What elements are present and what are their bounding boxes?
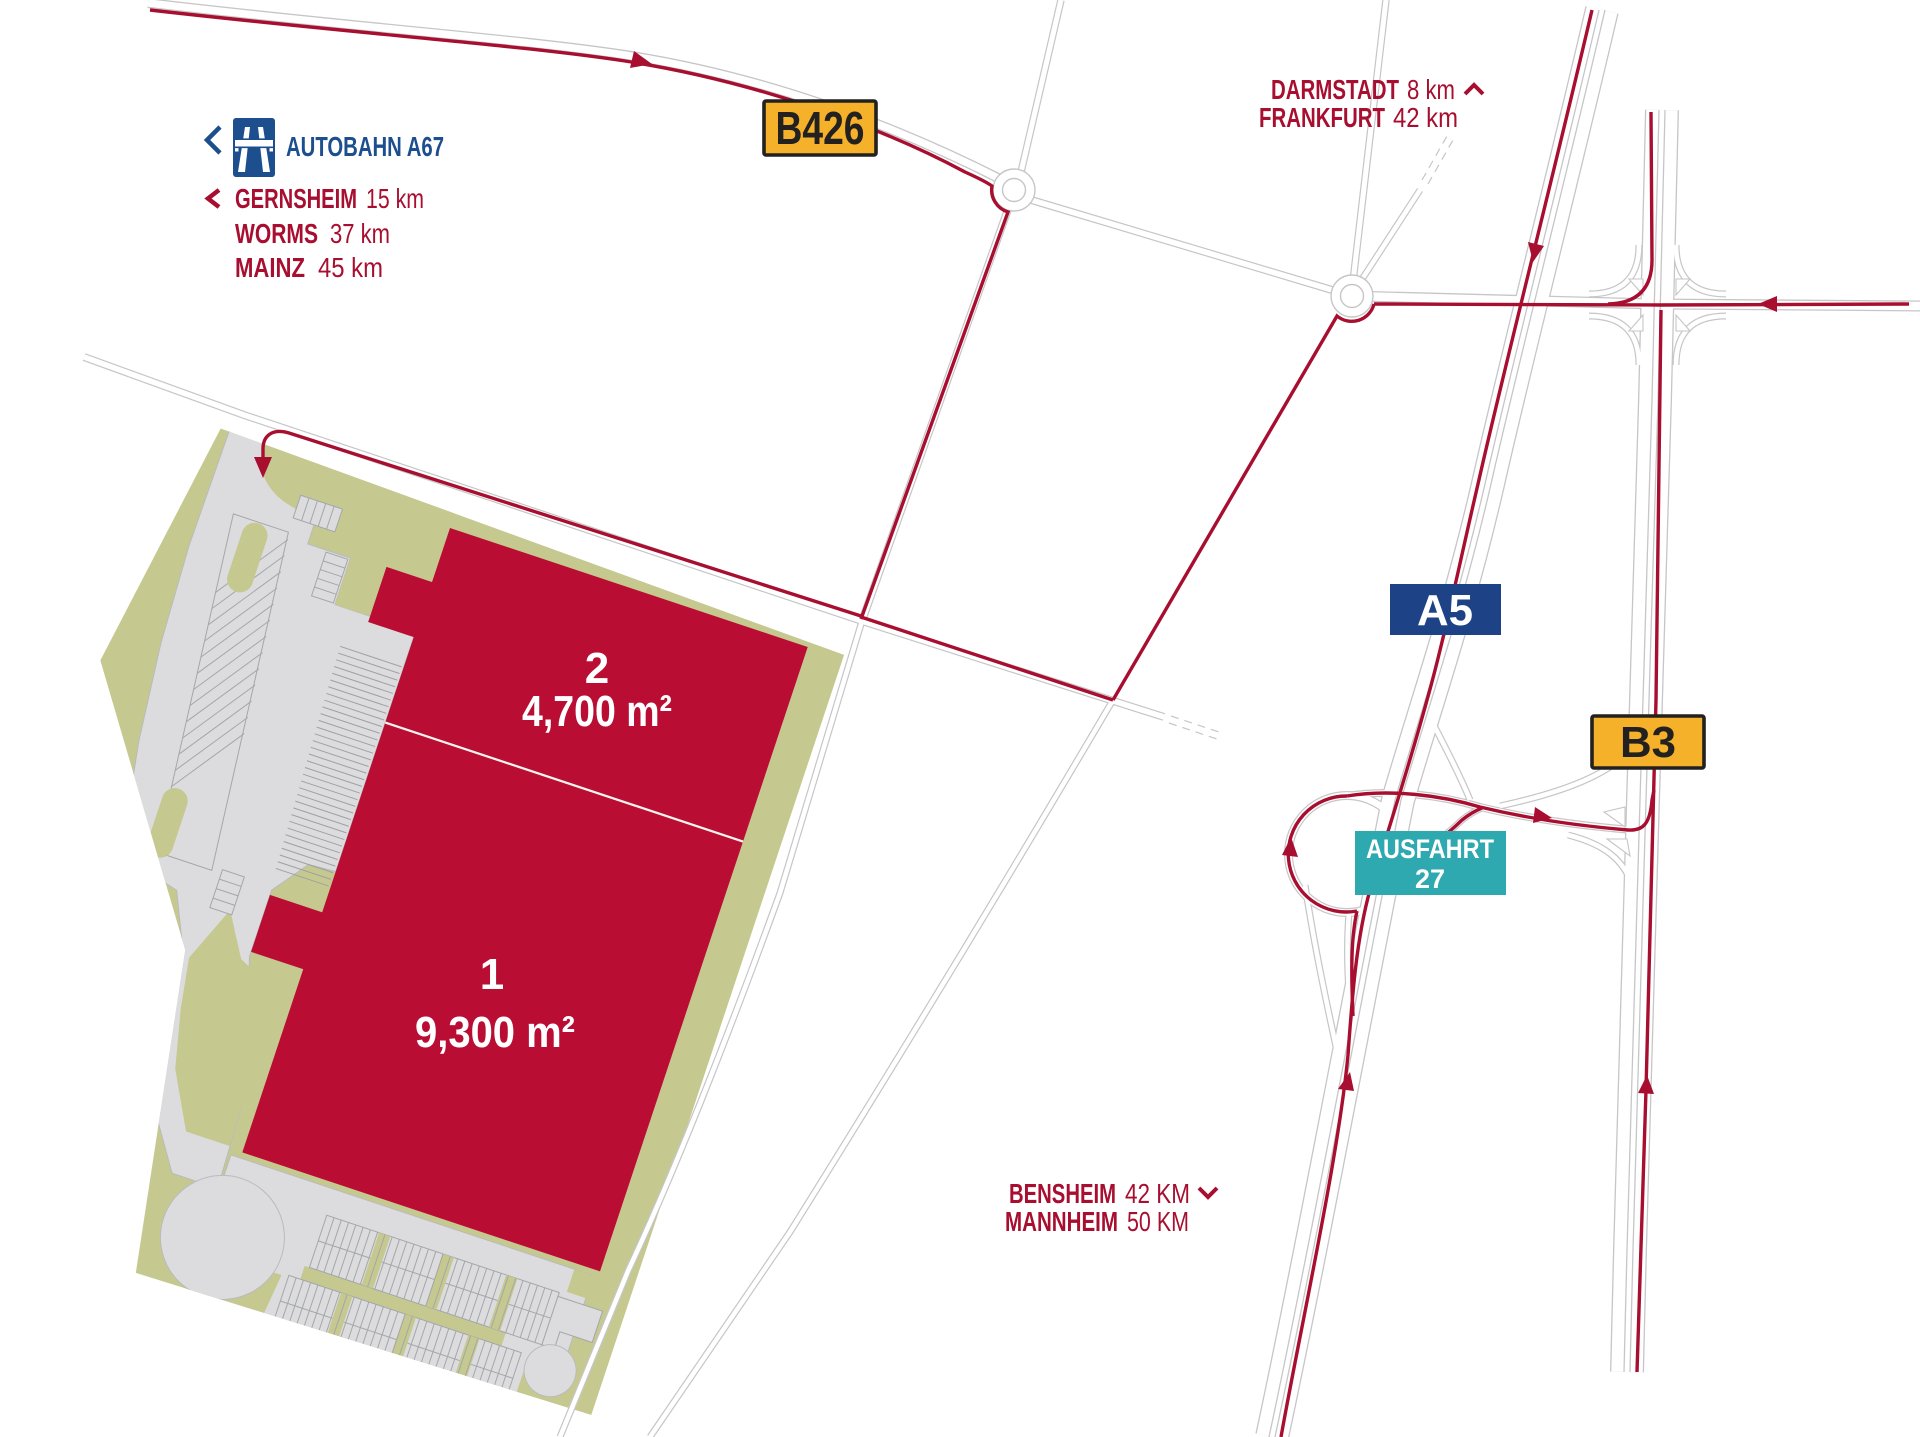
svg-text:GERNSHEIM15 km: GERNSHEIM15 km — [235, 183, 424, 214]
svg-text:FRANKFURT42 km: FRANKFURT42 km — [1259, 102, 1458, 133]
svg-text:9,300 m²: 9,300 m² — [415, 1008, 575, 1057]
svg-text:1: 1 — [480, 950, 504, 999]
svg-text:B426: B426 — [776, 102, 865, 154]
svg-text:27: 27 — [1415, 864, 1445, 894]
svg-text:AUTOBAHN A67: AUTOBAHN A67 — [286, 131, 444, 162]
svg-text:4,700 m²: 4,700 m² — [522, 687, 672, 736]
svg-text:A5: A5 — [1417, 586, 1473, 635]
svg-text:BENSHEIM42 KM: BENSHEIM42 KM — [1009, 1178, 1190, 1209]
svg-text:B3: B3 — [1620, 718, 1676, 767]
svg-text:2: 2 — [585, 644, 609, 693]
svg-text:WORMS37 km: WORMS37 km — [235, 218, 390, 249]
svg-text:DARMSTADT8 km: DARMSTADT8 km — [1271, 74, 1455, 105]
svg-text:AUSFAHRT: AUSFAHRT — [1366, 834, 1494, 864]
svg-text:MANNHEIM50 KM: MANNHEIM50 KM — [1005, 1206, 1189, 1237]
